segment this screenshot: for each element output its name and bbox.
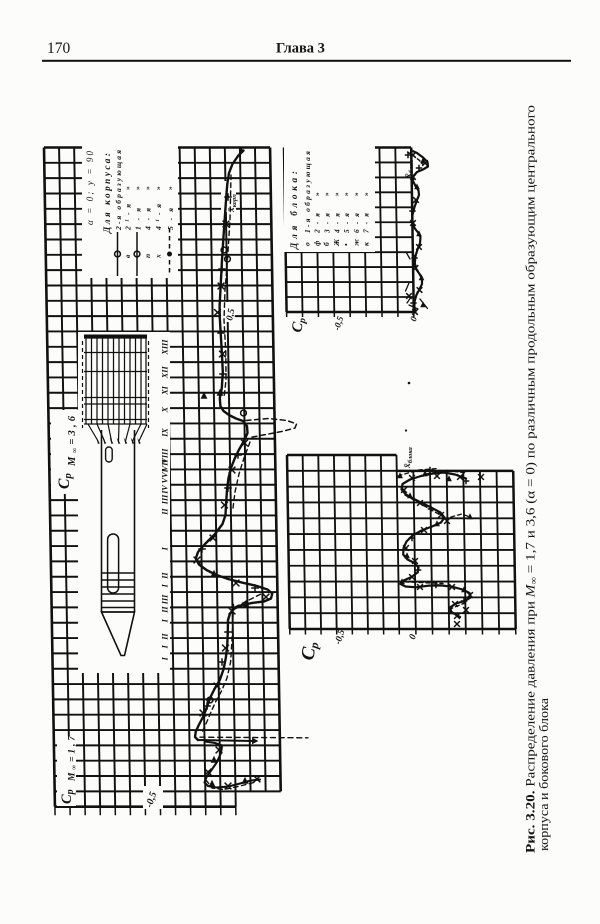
svg-text:XI: XI	[161, 385, 170, 395]
svg-text:х: х	[154, 254, 163, 259]
svg-text:0: 0	[408, 633, 419, 641]
svg-text:ф: ф	[312, 240, 321, 246]
svg-text:•: •	[342, 243, 351, 246]
svg-text:-0,5: -0,5	[331, 315, 345, 332]
svg-text:»: »	[166, 186, 175, 190]
svg-text:»: »	[123, 186, 132, 190]
svg-text:III: III	[161, 594, 170, 605]
svg-text:1-я: 1-я	[134, 208, 143, 230]
svg-text:2-я: 2-я	[313, 213, 322, 234]
svg-text:»: »	[154, 186, 163, 190]
svg-text:Cp: Cp	[289, 316, 308, 334]
svg-text:X: X	[161, 406, 170, 413]
svg-text:7-я: 7-я	[362, 213, 371, 233]
svg-text:к: к	[361, 242, 370, 246]
svg-text:II: II	[161, 606, 170, 614]
svg-text:о: о	[303, 242, 312, 246]
svg-text:III: III	[161, 494, 170, 505]
svg-text:»: »	[322, 192, 331, 196]
svg-text:IX: IX	[161, 428, 170, 438]
svg-text:0,5: 0,5	[225, 308, 237, 322]
svg-text:XIII: XIII	[161, 339, 170, 356]
svg-text:3-я: 3-я	[323, 213, 332, 234]
svg-text:-0,5: -0,5	[333, 628, 347, 646]
svg-text:4-я: 4-я	[144, 208, 153, 231]
svg-text:5-я: 5-я	[166, 208, 175, 230]
svg-text:»: »	[352, 192, 361, 196]
svg-text:ж: ж	[352, 238, 361, 246]
svg-text:Ж: Ж	[332, 238, 341, 247]
svg-text:α = 0; y = 90: α = 0; y = 90	[85, 151, 95, 226]
svg-text:»: »	[332, 192, 341, 196]
svg-text:II: II	[161, 508, 170, 516]
svg-text:Cp: Cp	[297, 640, 321, 662]
svg-text:»: »	[312, 192, 321, 196]
svg-text:п: п	[143, 254, 152, 258]
svg-text:170: 170	[47, 40, 71, 57]
svg-text:IV: IV	[161, 484, 170, 495]
svg-text:II: II	[161, 633, 170, 641]
svg-text:»: »	[133, 186, 142, 190]
svg-text:II: II	[161, 572, 170, 580]
svg-text:6-я: 6-я	[352, 213, 361, 233]
svg-text:»: »	[361, 192, 370, 196]
svg-text:корпуса и бокового блока: корпуса и бокового блока	[537, 698, 551, 851]
svg-text:x̄блока: x̄блока	[403, 446, 414, 469]
svg-text:»: »	[143, 186, 152, 190]
svg-text:2-я образующая: 2-я образующая	[114, 150, 123, 231]
svg-text:5-я: 5-я	[342, 213, 351, 233]
svg-text:XII: XII	[161, 366, 170, 380]
svg-text:VI: VI	[161, 468, 170, 477]
svg-text:Глава 3: Глава 3	[276, 41, 325, 57]
svg-text:4-я: 4-я	[332, 213, 341, 234]
svg-text:»: »	[342, 192, 351, 196]
